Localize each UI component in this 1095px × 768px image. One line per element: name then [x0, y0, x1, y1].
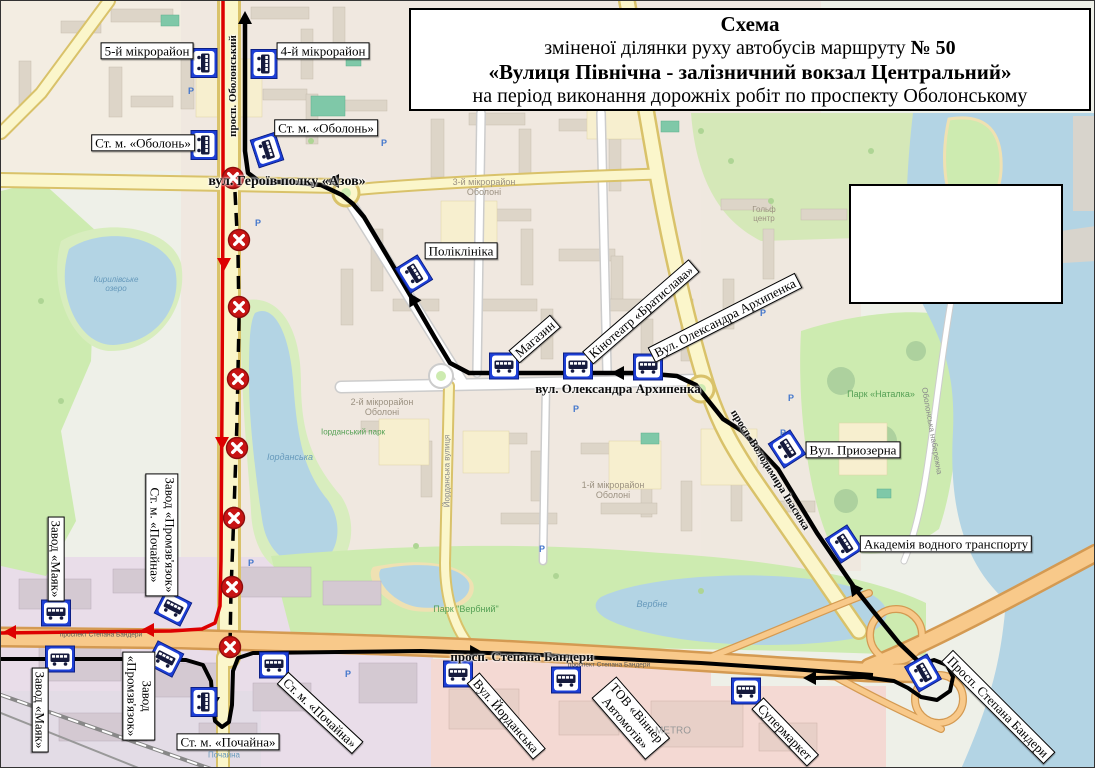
map-place-label: METRO — [655, 725, 691, 736]
stop-label: Поліклініка — [425, 242, 498, 259]
stop-label: Ст. м. «Оболонь» — [91, 134, 195, 151]
map-place-label: Гольфцентр — [752, 206, 776, 224]
map-place-label: 1-й мікрорайонОболоні — [582, 480, 645, 500]
parking-icon: P — [345, 669, 351, 679]
stop-label: Завод «Маяк» — [47, 517, 64, 602]
map-place-label: 3-й мікрорайонОболоні — [453, 177, 516, 197]
parking-icon: P — [573, 404, 579, 414]
stop-label: 4-й мікрорайон — [277, 42, 370, 59]
map-place-label: Вербне — [636, 599, 667, 609]
stop-label: Магазин — [508, 314, 561, 363]
route-scheme-map: 5-й мікрорайон4-й мікрорайонСт. м. «Обол… — [0, 0, 1095, 768]
street-name-label: просп. Володимира Івасюка — [728, 408, 812, 533]
stop-label: Завод«Промзв'язок» — [123, 652, 156, 741]
stop-label: Вул. Йорданська — [466, 672, 545, 759]
parking-icon: P — [248, 558, 254, 568]
title-line-3: «Вулиця Північна - залізничний вокзал Це… — [415, 60, 1085, 85]
parking-icon: P — [788, 393, 794, 403]
map-place-label: Іорданська — [267, 452, 313, 462]
stop-label: Супермаркет — [751, 697, 819, 766]
stop-label: Вул. Приозерна — [806, 441, 901, 458]
map-place-label: проспект Степана Бандери — [568, 661, 650, 668]
stop-label: Завод «Промзв'язок»Ст. м. «Почайна» — [146, 473, 179, 596]
map-place-label: Кирилівськеозеро — [94, 276, 139, 294]
stop-label: Ст. м. «Почайна» — [276, 672, 363, 755]
stop-label: Ст. м. «Почайна» — [177, 733, 280, 750]
parking-icon: P — [381, 138, 387, 148]
title-line-4: на період виконання дорожніх робіт по пр… — [415, 85, 1085, 108]
labels-layer: 5-й мікрорайон4-й мікрорайонСт. м. «Обол… — [1, 1, 1094, 767]
stop-label: Завод «Маяк» — [31, 668, 48, 753]
map-place-label: Парк "Вербний" — [433, 604, 499, 614]
street-name-label: просп. Оболонський — [227, 35, 239, 137]
parking-icon: P — [760, 308, 766, 318]
street-name-label: вул. Олександра Архипенка — [535, 381, 701, 397]
parking-icon: P — [188, 86, 194, 96]
map-place-label: Іорданський парк — [321, 429, 385, 438]
stop-label: ТОВ «ВіннерАвтомотів» — [592, 676, 670, 759]
stop-label: 5-й мікрорайон — [101, 42, 194, 59]
map-place-label: Оболонська набережна — [919, 387, 943, 475]
map-place-label: Почайна — [208, 752, 240, 761]
title-box: Схема зміненої ділянки руху автобусів ма… — [409, 8, 1091, 111]
street-name-label: вул. Героїв полку «Азов» — [208, 174, 365, 190]
title-line-2: зміненої ділянки руху автобусів маршруту… — [415, 37, 1085, 60]
map-place-label: Парк «Наталка» — [847, 389, 915, 399]
legend-box — [849, 184, 1063, 304]
map-place-label: проспект Степана Бандери — [60, 631, 142, 638]
title-line-1: Схема — [415, 12, 1085, 37]
map-place-label: 2-й мікрорайонОболоні — [351, 397, 414, 417]
parking-icon: P — [780, 428, 786, 438]
stop-label: Академія водного транспорту — [860, 535, 1032, 552]
parking-icon: P — [255, 218, 261, 228]
stop-label: Просп. Степана Бандери — [941, 650, 1056, 765]
map-place-label: Йорданська вулиця — [444, 435, 453, 507]
stop-label: Ст. м. «Оболонь» — [274, 119, 378, 136]
parking-icon: P — [539, 544, 545, 554]
